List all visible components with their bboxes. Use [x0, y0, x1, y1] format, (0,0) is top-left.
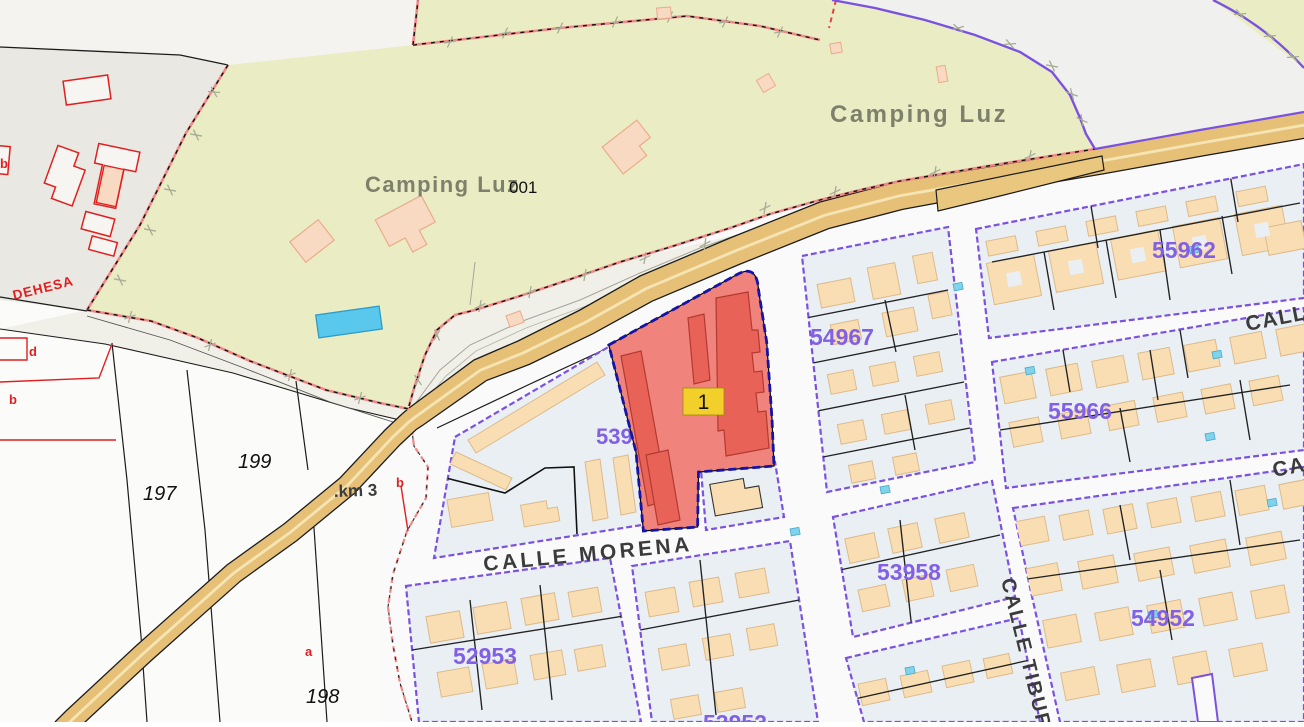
svg-text:Camping Luz: Camping Luz	[365, 172, 520, 197]
svg-text:55966: 55966	[1048, 398, 1112, 424]
svg-text:54952: 54952	[1131, 605, 1195, 631]
svg-text:b: b	[0, 156, 8, 171]
svg-text:198: 198	[306, 686, 339, 708]
svg-text:197: 197	[143, 483, 177, 505]
svg-text:d: d	[29, 344, 37, 359]
svg-text:001: 001	[509, 178, 537, 197]
svg-text:199: 199	[238, 451, 271, 473]
svg-text:54967: 54967	[810, 324, 874, 350]
svg-text:53952: 53952	[703, 710, 767, 722]
svg-text:55962: 55962	[1152, 237, 1216, 263]
svg-text:Camping Luz: Camping Luz	[830, 101, 1008, 128]
svg-text:.km 3: .km 3	[333, 480, 377, 501]
svg-text:53958: 53958	[877, 559, 941, 585]
svg-text:b: b	[396, 475, 404, 490]
svg-text:a: a	[305, 644, 313, 659]
svg-text:b: b	[9, 392, 17, 407]
svg-text:1: 1	[698, 391, 710, 414]
svg-text:52953: 52953	[453, 643, 517, 669]
